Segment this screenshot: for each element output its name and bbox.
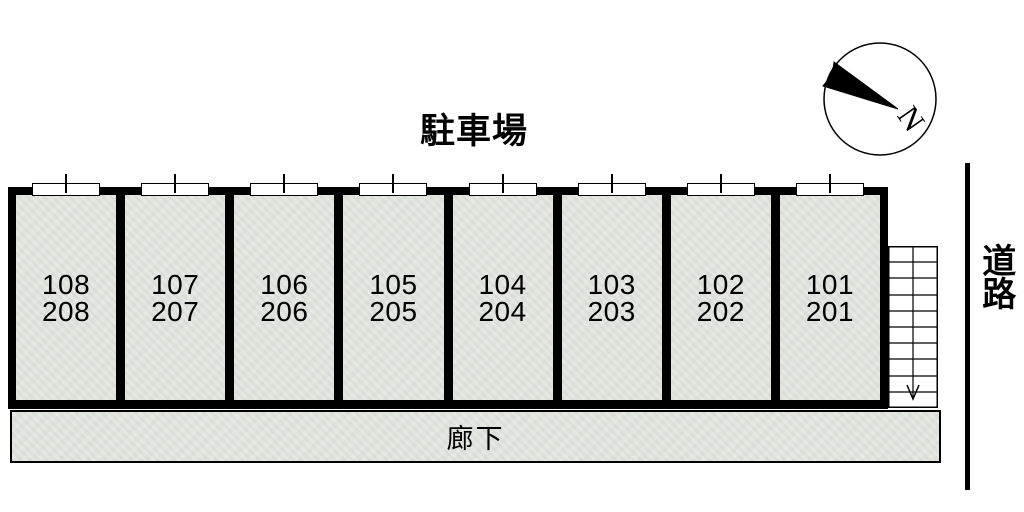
window-icon xyxy=(250,183,318,196)
window-tick-icon xyxy=(65,174,67,193)
window-icon xyxy=(687,183,755,196)
window-icon xyxy=(469,183,537,196)
room-number-1f: 107 xyxy=(151,271,199,298)
room-number-1f: 108 xyxy=(42,271,90,298)
window-icon xyxy=(141,183,209,196)
unit-104-204: 104 204 xyxy=(453,195,553,400)
window-icon xyxy=(796,183,864,196)
road-label: 道路 xyxy=(977,243,1013,309)
room-number-2f: 207 xyxy=(151,298,199,325)
room-number-label: 105 205 xyxy=(369,271,417,325)
staircase xyxy=(888,246,938,408)
window-icon xyxy=(578,183,646,196)
room-number-label: 107 207 xyxy=(151,271,199,325)
room-number-1f: 103 xyxy=(588,271,636,298)
unit-108-208: 108 208 xyxy=(16,195,116,400)
window-icon xyxy=(359,183,427,196)
window-tick-icon xyxy=(502,174,504,193)
window-tick-icon xyxy=(720,174,722,193)
room-number-1f: 101 xyxy=(806,271,854,298)
room-number-label: 104 204 xyxy=(478,271,526,325)
room-number-2f: 203 xyxy=(588,298,636,325)
window-tick-icon xyxy=(829,174,831,193)
site-plan-canvas: 駐車場 N 108 208 107 207 xyxy=(0,0,1024,512)
compass-rose: N xyxy=(818,37,944,163)
window-tick-icon xyxy=(174,174,176,193)
window-tick-icon xyxy=(283,174,285,193)
room-number-label: 102 202 xyxy=(697,271,745,325)
road-boundary-line xyxy=(965,163,970,490)
unit-107-207: 107 207 xyxy=(125,195,225,400)
window-tick-icon xyxy=(611,174,613,193)
room-number-1f: 105 xyxy=(369,271,417,298)
unit-102-202: 102 202 xyxy=(671,195,771,400)
room-number-2f: 201 xyxy=(806,298,854,325)
room-number-label: 103 203 xyxy=(588,271,636,325)
room-number-2f: 204 xyxy=(478,298,526,325)
window-icon xyxy=(32,183,100,196)
room-number-2f: 202 xyxy=(697,298,745,325)
building-units-row: 108 208 107 207 106 206 xyxy=(8,187,888,409)
unit-101-201: 101 201 xyxy=(780,195,880,400)
room-number-1f: 106 xyxy=(260,271,308,298)
room-number-label: 106 206 xyxy=(260,271,308,325)
corridor-label: 廊下 xyxy=(447,417,505,456)
window-tick-icon xyxy=(392,174,394,193)
room-number-label: 101 201 xyxy=(806,271,854,325)
room-number-1f: 102 xyxy=(697,271,745,298)
corridor: 廊下 xyxy=(10,410,941,463)
unit-103-203: 103 203 xyxy=(562,195,662,400)
unit-106-206: 106 206 xyxy=(234,195,334,400)
room-number-2f: 208 xyxy=(42,298,90,325)
unit-105-205: 105 205 xyxy=(343,195,443,400)
page-title: 駐車場 xyxy=(420,103,528,154)
room-number-2f: 205 xyxy=(369,298,417,325)
room-number-2f: 206 xyxy=(260,298,308,325)
room-number-label: 108 208 xyxy=(42,271,90,325)
room-number-1f: 104 xyxy=(478,271,526,298)
